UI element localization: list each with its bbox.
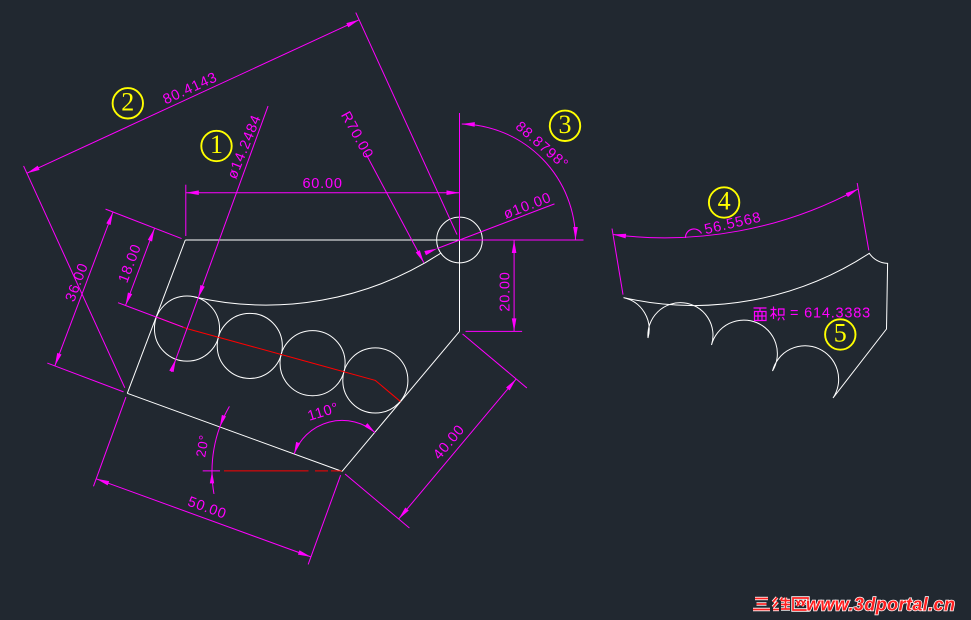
svg-text:4: 4 — [718, 187, 731, 216]
svg-text:3: 3 — [559, 110, 572, 139]
svg-text:www.3dportal.cn: www.3dportal.cn — [806, 595, 955, 615]
svg-text:60.00: 60.00 — [302, 176, 342, 192]
svg-text:5: 5 — [834, 319, 847, 348]
svg-text:2: 2 — [121, 87, 134, 116]
svg-text:1: 1 — [210, 130, 223, 159]
svg-text:20.00: 20.00 — [498, 271, 514, 311]
svg-text:= 614.3383: = 614.3383 — [790, 305, 871, 321]
